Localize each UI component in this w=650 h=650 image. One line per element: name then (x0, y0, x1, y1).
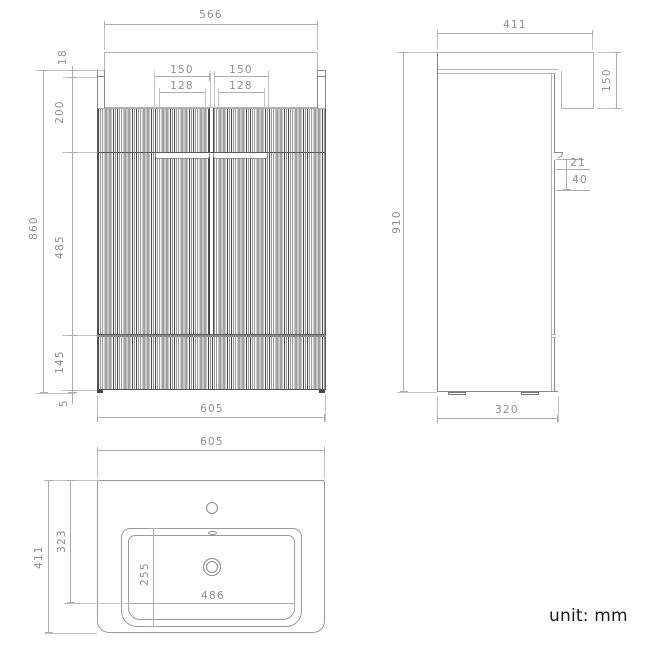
top-view: 605 255 486 323 411 (0, 0, 650, 650)
plan-total-depth-dim (48, 480, 49, 633)
plan-ext-bottom (44, 633, 97, 634)
plan-faucet-hole (206, 502, 218, 514)
plan-front-depth-label: 323 (57, 529, 68, 553)
plan-total-depth-label: 411 (34, 545, 45, 569)
plan-basin-depth-label: 255 (140, 562, 151, 586)
unit-note: unit: mm (549, 606, 628, 626)
plan-basin-width-label: 486 (201, 591, 225, 602)
plan-basin-depth-dim (153, 528, 154, 627)
plan-drain-inner (206, 561, 218, 573)
technical-drawing-canvas: 566 150 150 128 128 (0, 0, 650, 650)
plan-width-ext (324, 454, 325, 478)
plan-width-dim (97, 450, 325, 451)
plan-width-label: 605 (200, 437, 224, 448)
plan-486-ext (64, 603, 128, 604)
plan-front-depth-dim (70, 480, 71, 603)
plan-basin-width-dim (128, 603, 295, 604)
plan-width-ext (97, 454, 98, 478)
